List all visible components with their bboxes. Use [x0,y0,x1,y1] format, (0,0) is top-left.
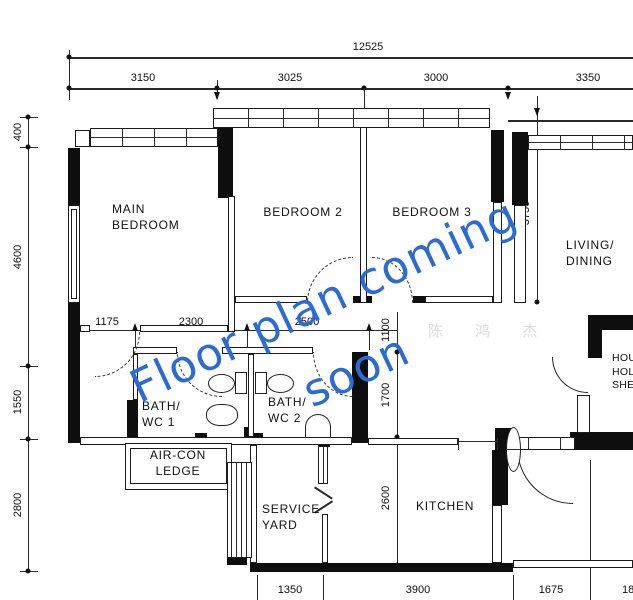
dim-label-1175: 1175 [95,316,119,328]
dim-line-top-segments [69,88,633,90]
dim-line-right [590,460,591,600]
door-arc-entrance [517,448,573,504]
wall-segment [68,148,80,205]
wall-segment [512,132,528,205]
wall-segment [322,514,328,563]
dim-arrow [505,92,511,100]
wall-segment [250,563,513,572]
wall-segment [368,438,458,445]
window [71,209,77,299]
room-label-bedroom2: BEDROOM 2 [263,205,342,221]
dim-label-4600: 4600 [12,245,24,269]
dim-label-2600: 2600 [380,486,392,510]
dim-label-total: 12525 [353,41,384,53]
room-label-kitchen: KITCHEN [416,499,474,515]
dim-line-left [28,115,29,573]
dim-label-3900: 3900 [406,584,430,596]
floor-plan: 12525 3150 3025 3000 3350 400 4600 1550 … [0,0,633,600]
dim-label-1550: 1550 [12,390,24,414]
room-label-household-shelter: HOUSE- HOLD SHELTER [612,352,633,393]
dim-label-400: 400 [12,123,24,141]
wall-segment [68,303,80,443]
room-label-living-dining: LIVING/ DINING [566,238,614,269]
dim-label-3150: 3150 [131,72,155,84]
dim-label-1350: 1350 [278,584,302,596]
shelter-door-leaf [577,395,590,433]
wall-segment [218,128,233,198]
dim-label-3025: 3025 [278,72,302,84]
dim-label-3350: 3350 [576,72,600,84]
wall-segment [570,432,633,450]
dim-label-3000: 3000 [424,72,448,84]
wall-segment [588,315,633,330]
dim-label-clipped: 18 [622,584,633,596]
dim-arrow [534,108,540,116]
parapet-line [508,120,633,122]
wall-segment [492,505,502,563]
room-label-service-yard: SERVICE YARD [262,502,320,533]
wall-segment [80,325,90,332]
wall-segment [588,330,602,358]
dim-arrow [214,92,220,100]
dim-label-1675: 1675 [539,584,563,596]
wall-segment [127,400,138,438]
bifold-door [314,486,332,499]
dim-label-2800: 2800 [12,493,24,517]
dim-line-total [69,57,633,59]
dim-arrow [132,323,138,331]
door-arc-shelter [552,357,588,393]
room-label-main-bedroom: MAIN BEDROOM [112,202,180,233]
wall-segment [75,130,90,147]
wall-segment [513,560,633,568]
